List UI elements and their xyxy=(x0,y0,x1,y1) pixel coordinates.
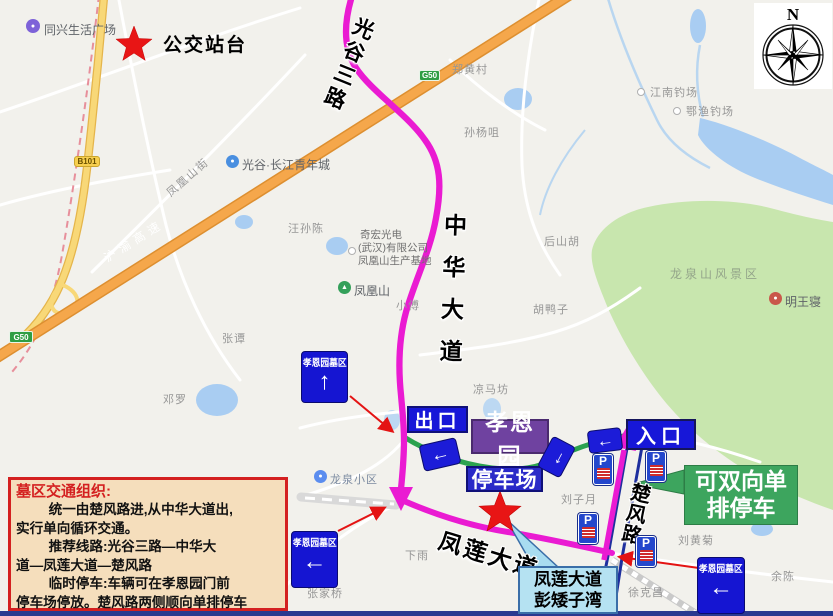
p-label: P xyxy=(599,455,607,468)
compass-rose: N xyxy=(754,3,832,89)
city-icon: ● xyxy=(226,155,239,168)
place-label: 龙泉小区 xyxy=(330,471,378,487)
mountain-icon: ▲ xyxy=(338,281,351,294)
sign-entrance: 入口 xyxy=(626,419,696,450)
place-label: 下雨 xyxy=(405,547,429,563)
place-label: 孙杨咀 xyxy=(464,124,500,140)
place-label: 明王寝 xyxy=(785,293,821,310)
sign-exit: 出口 xyxy=(407,406,468,433)
legend-bus-station: 公交站台 xyxy=(163,30,247,57)
callout-line: 凤莲大道 xyxy=(524,569,612,590)
place-label: 余陈 xyxy=(771,568,795,584)
callout-fenglian-pengaiziwan: 凤莲大道 彭矮子湾 xyxy=(518,566,618,614)
place-label: 汪孙陈 xyxy=(288,220,324,236)
compass-north-label: N xyxy=(787,5,800,24)
parking-sign: P xyxy=(593,454,613,485)
place-label: 凉马坊 xyxy=(473,381,509,397)
sign-xiaoenyuan: 孝恩园 xyxy=(471,419,549,454)
left-arrow-icon: ← xyxy=(595,430,614,452)
place-label: 徐克昌 xyxy=(628,584,664,600)
place-label: 小傅 xyxy=(396,297,420,313)
place-label: 郑黄村 xyxy=(452,61,488,77)
info-line: 临时停车:车辆可在孝恩园门前 xyxy=(16,575,280,594)
parking-sign-subtext xyxy=(582,527,595,538)
place-label: 龙泉山风景区 xyxy=(670,265,760,282)
callout-line: 排停车 xyxy=(689,495,793,522)
place-label: 鄂渔钓场 xyxy=(686,103,734,119)
left-arrow-icon: ← xyxy=(543,444,570,470)
parking-sign: P xyxy=(578,513,598,544)
info-title: 墓区交通组织: xyxy=(16,482,280,501)
callout-line: 可双向单 xyxy=(689,468,793,495)
parking-sign-subtext xyxy=(650,465,663,476)
badge-b101: B101 xyxy=(74,156,100,167)
up-arrow-icon: ↑ xyxy=(319,370,331,394)
info-line: 实行单向循环交通。 xyxy=(16,520,280,539)
tomb-icon: ● xyxy=(769,292,782,305)
sign-text: 孝恩园墓区 xyxy=(303,355,347,369)
left-arrow-icon: ← xyxy=(428,442,451,468)
traffic-map: 光谷三路 中华大道 楚风路 凤莲大道 凤凰山街 沪渝高速 B101 G50 G5… xyxy=(0,0,833,616)
traffic-info-box: 墓区交通组织: 统一由楚风路进,从中华大道出, 实行单向循环交通。 推荐线路:光… xyxy=(8,477,288,611)
info-line: 推荐线路:光谷三路—中华大 xyxy=(16,538,280,557)
residential-icon: ● xyxy=(314,470,327,483)
left-arrow-icon: ← xyxy=(303,550,327,574)
parking-sign: P xyxy=(636,536,656,567)
p-label: P xyxy=(584,514,592,527)
callout-parking-both-sides: 可双向单 排停车 xyxy=(684,465,798,525)
sign-text: 孝恩园墓区 xyxy=(699,561,743,575)
sign-cemetery-left-se: 孝恩园墓区 ← xyxy=(697,557,745,614)
place-label: 同兴生活广场 xyxy=(44,21,116,38)
info-line: 停车场停放。楚风路两侧顺向单排停车 xyxy=(16,594,280,613)
place-label: 张谭 xyxy=(222,330,246,346)
info-line: 道—凤莲大道—楚风路 xyxy=(16,557,280,576)
sign-text: 孝恩园墓区 xyxy=(293,535,337,549)
pond xyxy=(326,237,348,255)
sign-cemetery-ahead: 孝恩园墓区 ↑ xyxy=(301,351,348,403)
place-label: 刘子月 xyxy=(561,491,597,507)
callout-line: 彭矮子湾 xyxy=(524,590,612,611)
pond xyxy=(690,9,706,43)
place-label: 后山胡 xyxy=(544,233,580,249)
pond xyxy=(196,384,238,416)
place-label: 凤凰山 xyxy=(354,282,390,299)
place-label: 刘黄菊 xyxy=(678,532,714,548)
compass: N xyxy=(754,3,832,89)
sign-cemetery-left-sw: 孝恩园墓区 ← xyxy=(291,531,338,588)
poi-ring-icon xyxy=(348,247,356,255)
p-label: P xyxy=(652,452,660,465)
parking-sign: P xyxy=(646,451,666,482)
mall-icon: ● xyxy=(26,19,40,33)
road-label-zhonghua: 中华大道 xyxy=(431,212,471,381)
badge-g50: G50 xyxy=(419,70,440,81)
poi-ring-icon xyxy=(637,88,645,96)
place-label: 胡鸭子 xyxy=(533,301,569,317)
place-label: 凤凰山生产基地 xyxy=(358,253,432,268)
p-label: P xyxy=(642,537,650,550)
pond xyxy=(235,215,253,229)
poi-ring-icon xyxy=(673,107,681,115)
place-label: 邓罗 xyxy=(163,391,187,407)
parking-sign-subtext xyxy=(597,468,610,479)
badge-g50: G50 xyxy=(9,331,33,343)
place-label: 光谷·长江青年城 xyxy=(242,156,330,173)
left-arrow-icon: ← xyxy=(709,576,733,600)
info-line: 统一由楚风路进,从中华大道出, xyxy=(16,501,280,520)
place-label: 江南钓场 xyxy=(650,84,698,100)
direction-arrow-sign: ← xyxy=(587,427,624,454)
sign-parking-lot: 停车场 xyxy=(466,466,543,492)
parking-sign-subtext xyxy=(640,550,653,561)
